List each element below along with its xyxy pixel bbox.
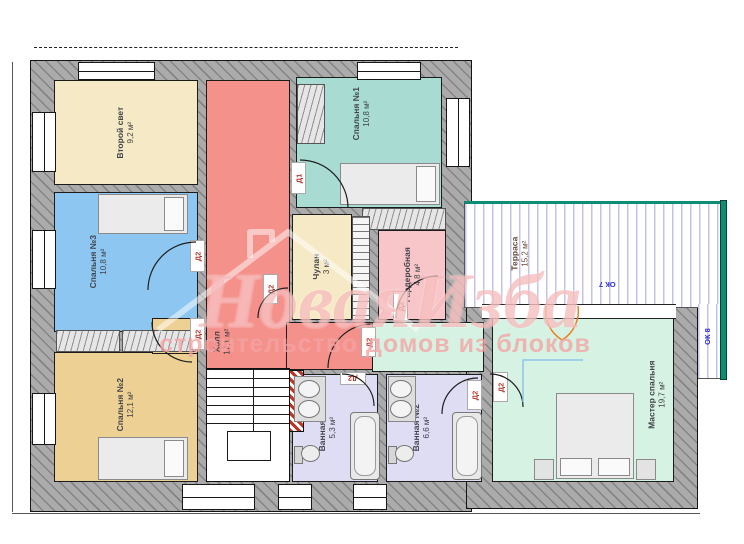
ladder: [352, 216, 370, 320]
door-label: Д2: [190, 240, 205, 272]
bed-pillow: [164, 197, 184, 231]
room-label: Чулан 3 м²: [311, 254, 332, 280]
room-label: Мастер спальня 19,7 м²: [646, 361, 667, 429]
door-label: Д2: [361, 327, 376, 357]
stair-landing: [227, 431, 271, 461]
master-corridor: [372, 322, 484, 372]
door-label: Д2: [190, 318, 205, 350]
nightstand: [636, 459, 656, 480]
room-label: Спальня №3 10,8 м²: [88, 235, 109, 288]
wardrobe-unit: [122, 330, 196, 352]
bed-pillow: [164, 440, 184, 477]
stair-treads: [207, 369, 289, 432]
terrace-edge: [720, 200, 727, 380]
door-label: Д2: [263, 274, 278, 304]
toilet: [301, 445, 320, 462]
window: [32, 393, 56, 445]
room-wardrobe: Гардеробная 4,8 м²: [378, 230, 446, 320]
room-label: Терраса 15,2 м²: [509, 237, 530, 271]
nightstand: [534, 459, 554, 480]
toilet: [395, 445, 414, 462]
bathtub: [350, 412, 380, 480]
bathtub: [452, 412, 482, 480]
wardrobe-unit: [56, 330, 120, 352]
door-label: Д2: [493, 372, 508, 402]
sink: [390, 380, 412, 398]
door-label: Д1: [291, 162, 306, 194]
sink: [390, 400, 412, 418]
terrace-walkway: [482, 304, 676, 319]
floor-plan: Второй свет 9,2 м² Спальня №3 10,8 м² Сп…: [0, 0, 744, 544]
window: [32, 112, 56, 172]
left-reference-line: [12, 62, 13, 512]
room-label: Второй свет 9,2 м²: [115, 107, 136, 159]
room-closet: Чулан 3 м²: [292, 214, 352, 320]
window: [182, 484, 255, 510]
window: [32, 230, 56, 289]
bathtub-basin: [354, 416, 376, 476]
wardrobe-unit: [362, 208, 446, 230]
window-label: ОК 8: [701, 318, 714, 354]
window: [446, 98, 470, 167]
room-terrace-label-box: Терраса 15,2 м²: [498, 212, 542, 296]
window: [78, 62, 155, 80]
door-label: Д2: [393, 291, 408, 321]
stair-divider: [253, 369, 254, 432]
staircase: [206, 368, 290, 482]
bathtub-basin: [456, 416, 478, 476]
room-label: Спальня №1 10,8 м²: [351, 87, 372, 140]
wardrobe-unit: [297, 84, 325, 144]
roof-overhang-line: [34, 47, 458, 48]
bed-pillow: [560, 458, 592, 476]
sink: [298, 400, 320, 418]
door-label: Д2: [467, 380, 482, 410]
bed-pillow: [598, 458, 630, 476]
window: [278, 484, 312, 510]
bottom-reference-line: [12, 513, 700, 514]
window-label: ОК 7: [592, 279, 622, 290]
room-hall: Холл 17,1 м²: [206, 80, 290, 370]
bed-pillow: [416, 166, 436, 202]
room-label: Холл 17,1 м²: [211, 329, 232, 355]
window: [357, 62, 421, 80]
room-label: Спальня №2 12,1 м²: [115, 378, 136, 431]
room-second-light: Второй свет 9,2 м²: [54, 80, 198, 185]
sink: [298, 380, 320, 398]
door-label: Д2: [340, 372, 366, 385]
window: [353, 484, 387, 510]
